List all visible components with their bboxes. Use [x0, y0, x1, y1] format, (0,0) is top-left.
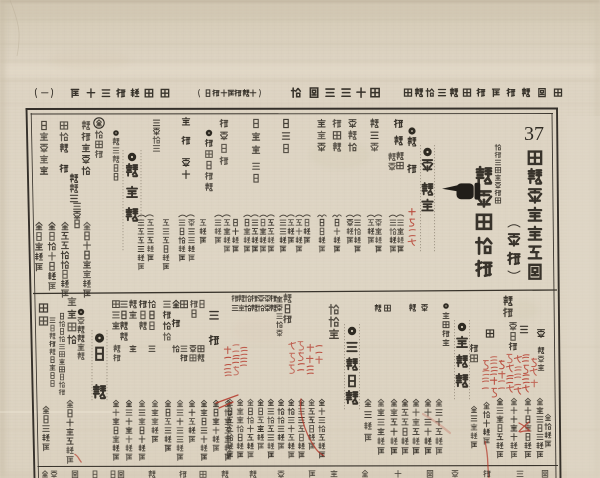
svg-text:37: 37 — [524, 123, 544, 145]
